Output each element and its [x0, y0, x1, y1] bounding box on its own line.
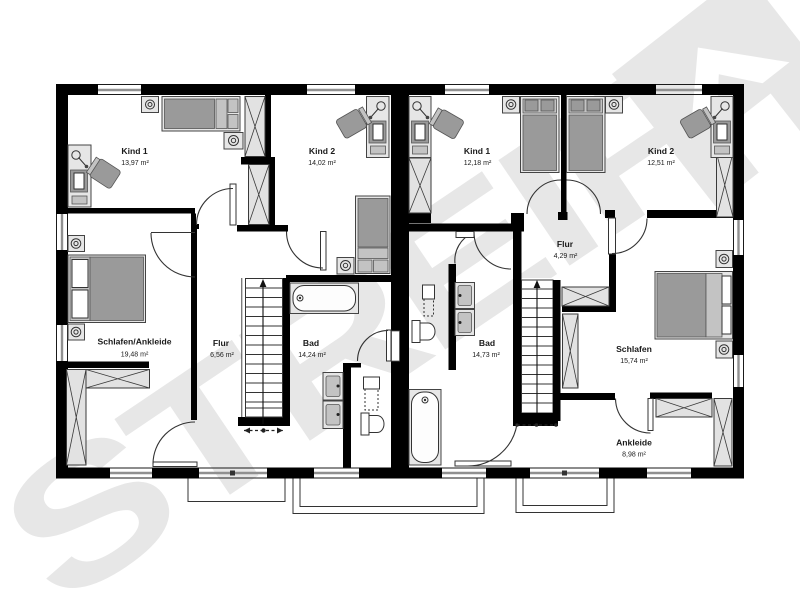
svg-text:Schlafen: Schlafen — [616, 344, 652, 354]
svg-text:13,97 m²: 13,97 m² — [121, 160, 149, 167]
svg-text:Flur: Flur — [557, 239, 574, 249]
svg-text:Flur: Flur — [213, 338, 230, 348]
svg-text:Schlafen/Ankleide: Schlafen/Ankleide — [97, 337, 171, 347]
svg-text:12,18 m²: 12,18 m² — [464, 160, 492, 167]
svg-text:Bad: Bad — [479, 338, 495, 348]
svg-text:Ankleide: Ankleide — [616, 438, 652, 448]
svg-text:6,56 m²: 6,56 m² — [210, 352, 234, 359]
svg-text:14,02 m²: 14,02 m² — [308, 160, 336, 167]
svg-text:Kind 1: Kind 1 — [121, 146, 147, 156]
svg-text:19,48 m²: 19,48 m² — [121, 352, 149, 359]
svg-text:Bad: Bad — [303, 338, 319, 348]
svg-text:4,29 m²: 4,29 m² — [554, 253, 578, 260]
svg-text:Kind 2: Kind 2 — [648, 146, 674, 156]
svg-text:14,24 m²: 14,24 m² — [298, 352, 326, 359]
svg-text:Kind 2: Kind 2 — [309, 146, 335, 156]
svg-text:15,74 m²: 15,74 m² — [620, 358, 648, 365]
svg-text:Kind 1: Kind 1 — [464, 146, 490, 156]
svg-text:8,98 m²: 8,98 m² — [622, 452, 646, 459]
svg-text:12,51 m²: 12,51 m² — [647, 160, 675, 167]
svg-text:14,73 m²: 14,73 m² — [472, 352, 500, 359]
